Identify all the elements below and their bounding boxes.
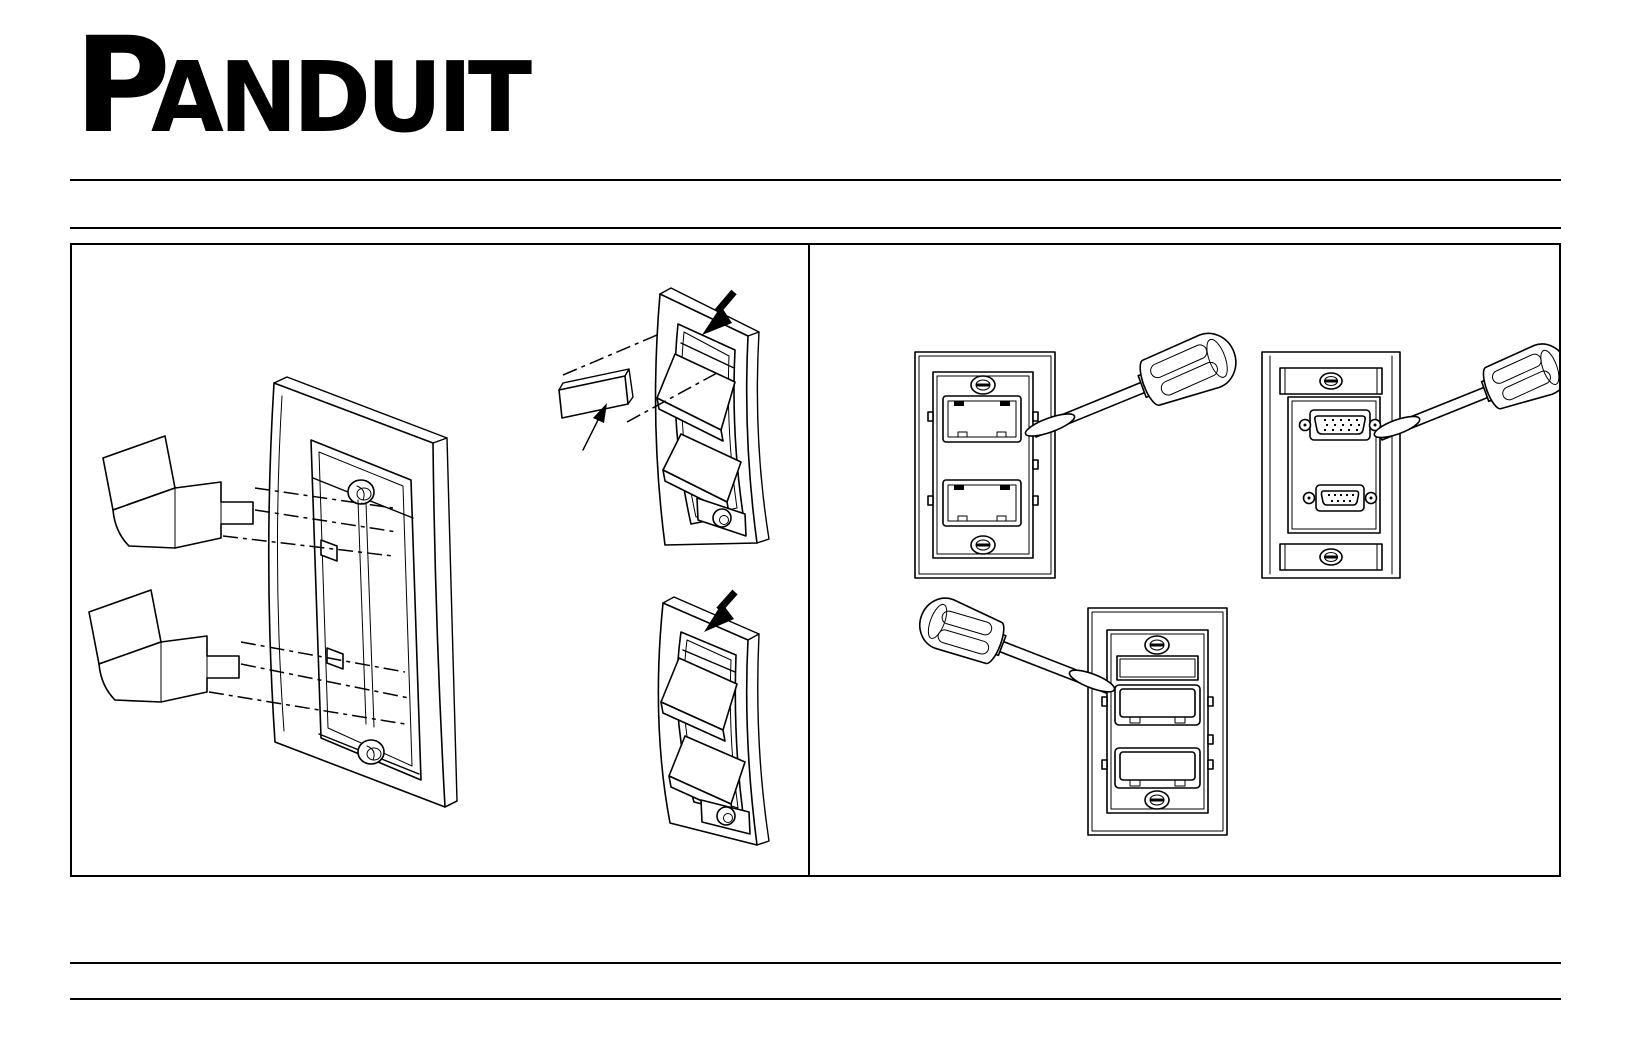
screwdriver-prying-vga-db9-faceplate-diagram — [1255, 325, 1559, 580]
screw-icon — [1320, 373, 1342, 389]
screw-boss-icon — [348, 480, 374, 504]
screw-icon — [1320, 549, 1342, 565]
faceplate-front-icon — [915, 352, 1055, 578]
header-rule-top — [70, 179, 1561, 181]
modules-into-faceplate-rear-diagram — [75, 340, 475, 840]
panel-divider — [808, 245, 810, 875]
faceplate-tilted-icon — [658, 597, 769, 845]
screw-icon — [713, 509, 731, 527]
label-strip-removal-diagram — [545, 262, 780, 562]
screw-icon — [717, 807, 735, 825]
screwdriver-prying-jack-module-faceplate-diagram — [870, 330, 1255, 585]
jack-module-icon — [103, 436, 253, 548]
screwdriver-prying-shuttered-faceplate-diagram — [860, 575, 1235, 850]
shuttered-opening — [1102, 748, 1213, 788]
header-rule-bottom — [70, 227, 1561, 229]
screw-icon — [971, 376, 995, 394]
footer-rule-top — [70, 962, 1561, 964]
label-strip-icon — [559, 369, 633, 418]
panduit-logo-letters: ANDUIT — [151, 32, 527, 164]
screwdriver-icon — [912, 591, 1117, 696]
shuttered-faceplate-tilted-diagram — [555, 552, 770, 857]
instruction-sheet-page: PANDUIT — [0, 0, 1632, 1056]
screw-boss-icon — [358, 740, 384, 764]
jack-module-opening — [928, 396, 1038, 442]
panduit-logo: PANDUIT — [74, 20, 539, 164]
footer-rule-bottom — [70, 998, 1561, 1000]
screw-icon — [971, 536, 995, 554]
vga-connector-icon — [1300, 410, 1381, 440]
screw-icon — [1145, 791, 1169, 809]
faceplate-front-icon — [1262, 352, 1400, 578]
faceplate-rear-icon — [269, 377, 457, 807]
faceplate-front-icon — [1088, 608, 1227, 835]
screw-icon — [1145, 636, 1169, 654]
jack-module-icon — [89, 590, 239, 702]
jack-module-opening — [928, 480, 1038, 526]
screwdriver-icon — [1023, 330, 1243, 440]
shuttered-opening — [1102, 685, 1213, 725]
